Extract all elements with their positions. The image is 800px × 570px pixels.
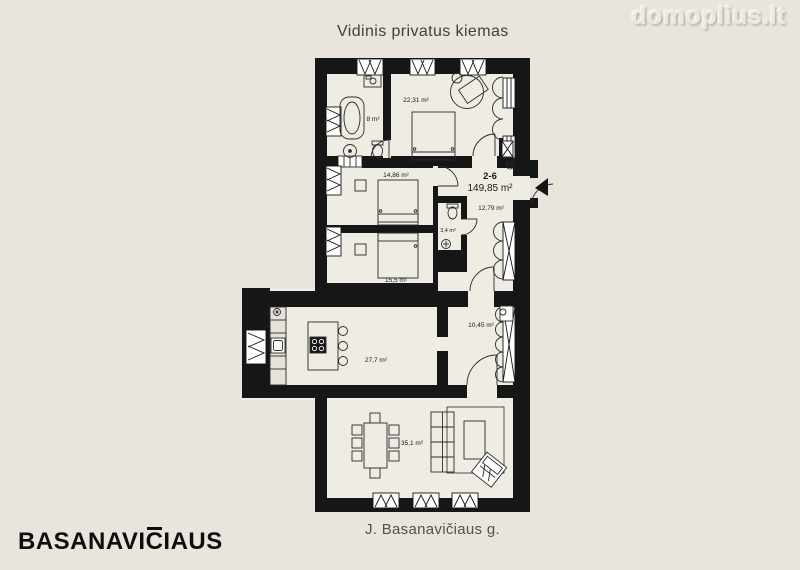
shaft-box-icon [502,141,513,157]
logo-c-macron: C [146,528,164,556]
label-bedroom-low: 15,5 m² [385,277,408,284]
label-bathroom: 8 m² [367,116,381,123]
label-kitchen: 27,7 m² [365,357,388,364]
window-top-1-icon [357,59,383,75]
window-left-2-icon [326,166,341,195]
logo-prefix: BASANAVI [18,528,146,555]
floor-plan-page: Vidinis privatus kiemas domoplius.lt [0,0,800,570]
window-left-3-icon [326,227,341,256]
label-bedroom-top: 22,31 m² [403,97,429,104]
label-apartment-number: 2-6 [483,171,497,182]
window-hall-icon [503,222,515,280]
entrance-arrow-icon [535,178,548,196]
window-kitchen-icon [246,330,266,364]
window-bottom-2-icon [413,493,439,508]
window-bottom-1-icon [373,493,399,508]
label-apartment-area: 149,85 m² [467,183,513,194]
basanaviciaus-logo: BASANAVICIAUS [18,528,223,556]
label-utility: 10,45 m² [468,322,494,329]
kitchen-island-icon [308,322,338,370]
street-label: J. Basanavičiaus g. [365,521,500,538]
label-wc: 3,4 m² [440,228,456,234]
window-right-1-icon [503,78,515,108]
window-top-2-icon [410,59,435,75]
utility-desk-icon [500,306,513,321]
label-hallway: 12,79 m² [478,205,504,212]
label-living: 35,1 m² [401,440,424,447]
logo-suffix: IAUS [163,528,222,555]
window-top-3-icon [460,59,486,75]
window-left-1-icon [326,107,341,136]
label-bedroom-mid: 14,86 m² [383,172,409,179]
floor-plan-drawing: 22,31 m² 8 m² 14,86 m² 12,79 m² 3,4 m² 1… [0,0,800,570]
kitchen-counter-icon [270,307,286,385]
window-bottom-3-icon [452,493,478,508]
